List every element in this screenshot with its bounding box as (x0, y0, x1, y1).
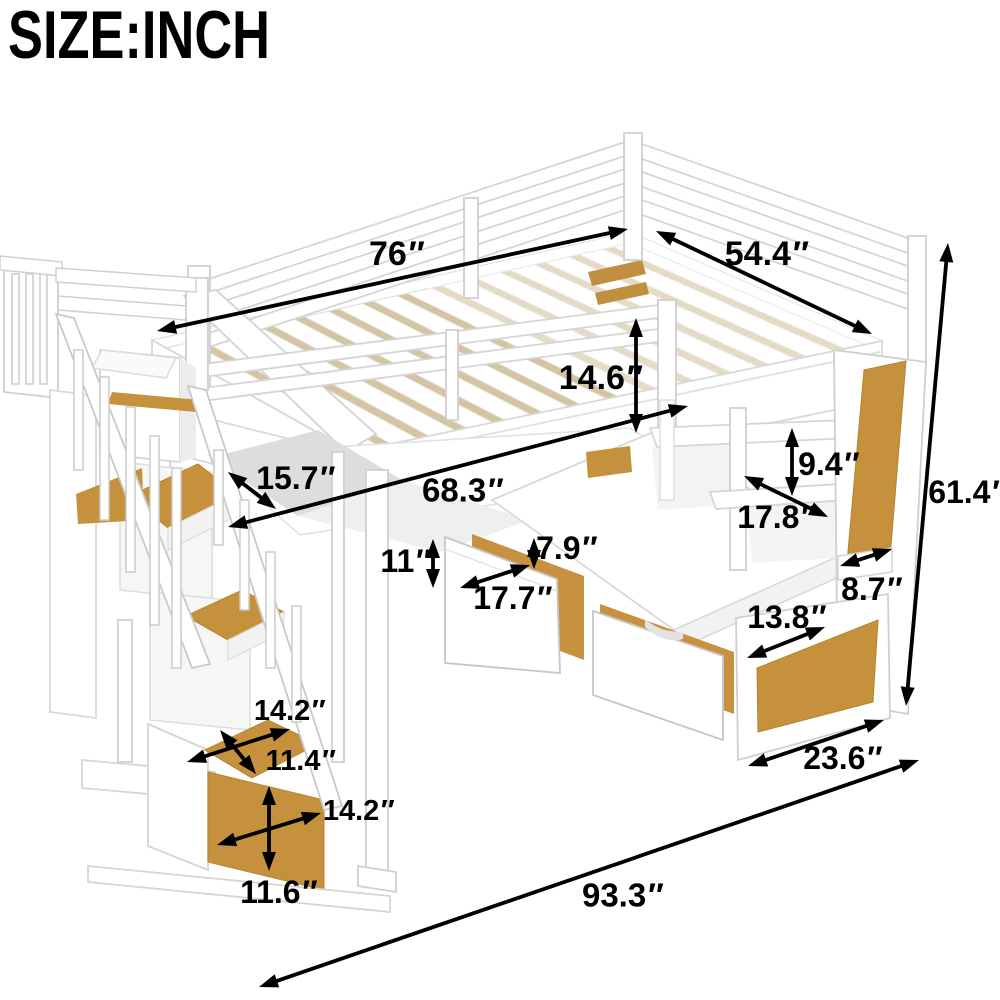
svg-text:11″: 11″ (380, 543, 431, 579)
svg-text:23.6″: 23.6″ (803, 740, 882, 776)
svg-text:61.4″: 61.4″ (928, 474, 1000, 510)
svg-text:7.9″: 7.9″ (536, 530, 597, 566)
svg-text:14.6″: 14.6″ (559, 359, 643, 397)
svg-text:76″: 76″ (369, 235, 425, 273)
svg-text:11.6″: 11.6″ (240, 874, 318, 910)
svg-text:93.3″: 93.3″ (582, 877, 663, 914)
svg-text:13.8″: 13.8″ (747, 599, 826, 635)
svg-text:17.8″: 17.8″ (737, 499, 816, 535)
svg-text:15.7″: 15.7″ (256, 460, 335, 496)
svg-text:14.2″: 14.2″ (254, 695, 325, 727)
svg-text:54.4″: 54.4″ (725, 235, 809, 273)
svg-text:14.2″: 14.2″ (323, 795, 394, 827)
svg-text:68.3″: 68.3″ (422, 472, 503, 509)
svg-text:11.4″: 11.4″ (266, 745, 336, 777)
svg-text:17.7″: 17.7″ (473, 580, 552, 616)
svg-text:9.4″: 9.4″ (798, 446, 859, 482)
svg-text:SIZE:INCH: SIZE:INCH (8, 0, 270, 73)
svg-text:8.7″: 8.7″ (841, 571, 902, 607)
